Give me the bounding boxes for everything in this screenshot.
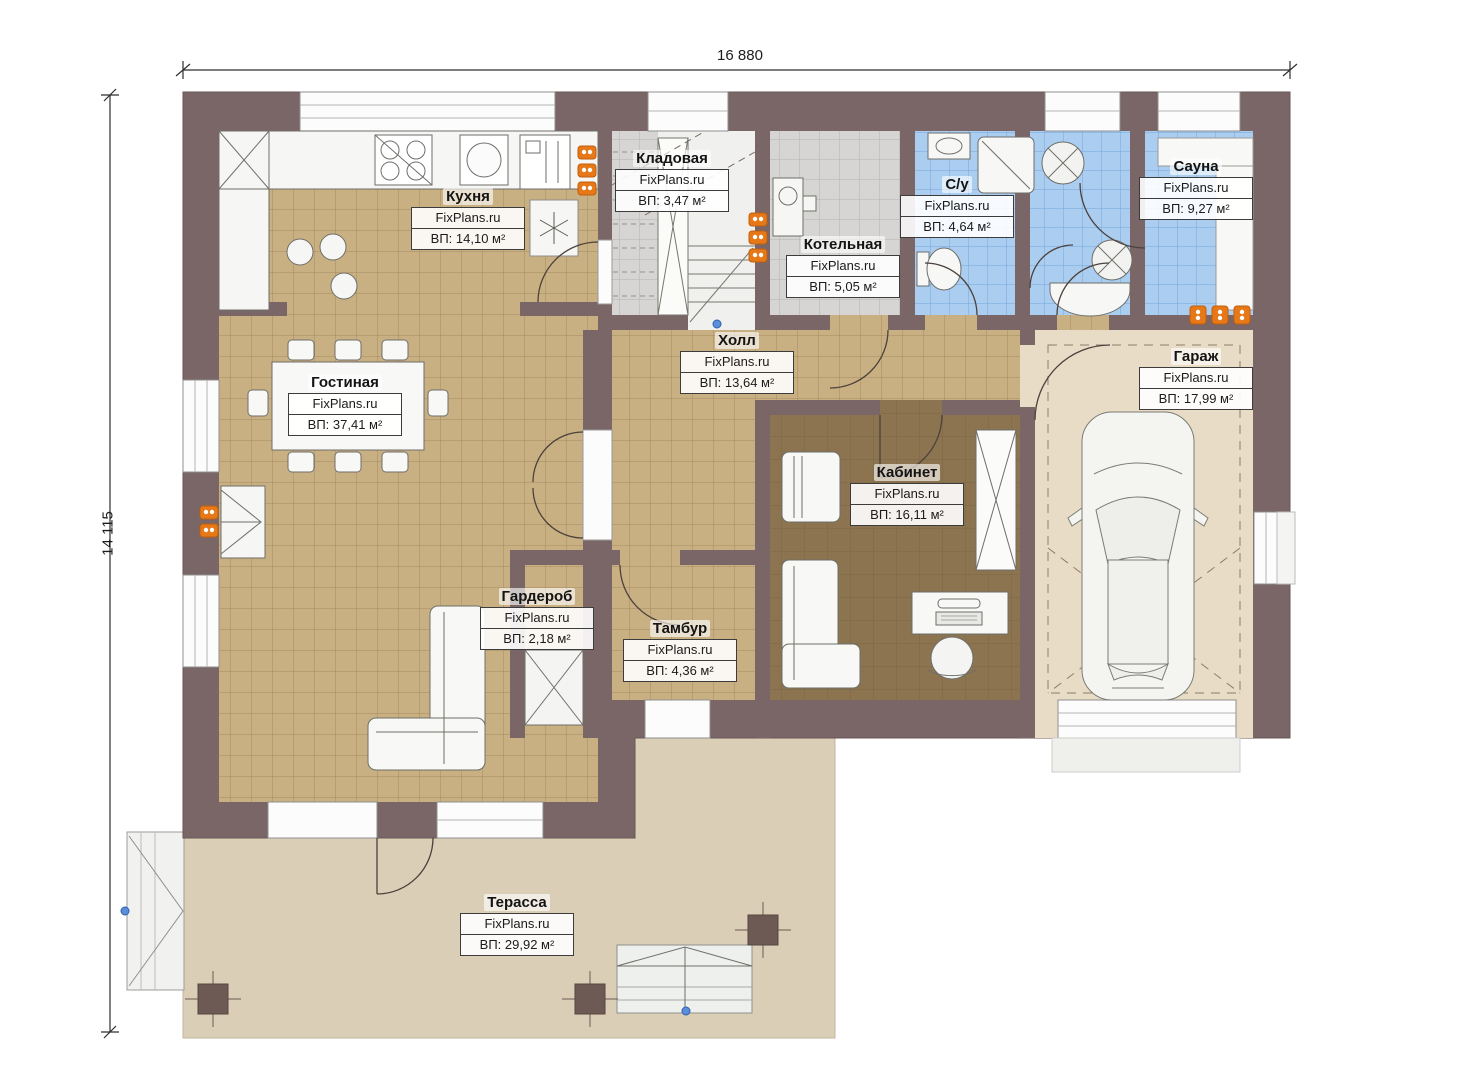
room-label-kitchen: Кухня FixPlans.ru ВП: 14,10 м² — [393, 188, 543, 250]
wardrobe-cabinet-icon — [525, 650, 583, 725]
terrace-steps-icon — [617, 945, 752, 1013]
room-info-box: FixPlans.ru ВП: 17,99 м² — [1139, 367, 1253, 410]
room-name: Котельная — [768, 236, 918, 253]
room-name: Тамбур — [605, 620, 755, 637]
office-closet-icon — [976, 430, 1016, 570]
room-info-box: FixPlans.ru ВП: 16,11 м² — [850, 483, 964, 526]
room-name: Сауна — [1121, 158, 1271, 175]
room-area-text: ВП: 16,11 м² — [851, 505, 963, 525]
room-label-terrace: Терасса FixPlans.ru ВП: 29,92 м² — [442, 894, 592, 956]
room-label-office: Кабинет FixPlans.ru ВП: 16,11 м² — [832, 464, 982, 526]
watermark-text: FixPlans.ru — [1140, 368, 1252, 389]
room-area-text: ВП: 5,05 м² — [787, 277, 899, 297]
washbasin-icon — [928, 133, 970, 159]
room-name: Гараж — [1121, 348, 1271, 365]
room-info-box: FixPlans.ru ВП: 37,41 м² — [288, 393, 402, 436]
room-area-text: ВП: 4,64 м² — [901, 217, 1013, 237]
room-info-box: FixPlans.ru ВП: 4,64 м² — [900, 195, 1014, 238]
room-label-wardrobe: Гардероб FixPlans.ru ВП: 2,18 м² — [462, 588, 612, 650]
watermark-text: FixPlans.ru — [787, 256, 899, 277]
watermark-text: FixPlans.ru — [481, 608, 593, 629]
dimension-width-label: 16 880 — [695, 47, 785, 64]
room-label-hall: Холл FixPlans.ru ВП: 13,64 м² — [662, 332, 812, 394]
room-name: Кладовая — [597, 150, 747, 167]
watermark-text: FixPlans.ru — [412, 208, 524, 229]
room-info-box: FixPlans.ru ВП: 5,05 м² — [786, 255, 900, 298]
room-info-box: FixPlans.ru ВП: 14,10 м² — [411, 207, 525, 250]
toilet-icon — [917, 248, 961, 290]
dimension-height-label: 14 115 — [100, 489, 117, 579]
room-name: Холл — [662, 332, 812, 349]
sink-icon — [460, 135, 508, 185]
room-label-sauna: Сауна FixPlans.ru ВП: 9,27 м² — [1121, 158, 1271, 220]
room-name: Терасса — [442, 894, 592, 911]
fireplace-icon — [221, 486, 265, 558]
room-area-text: ВП: 17,99 м² — [1140, 389, 1252, 409]
radiator-icon — [749, 213, 767, 262]
room-label-bathroom: С/у FixPlans.ru ВП: 4,64 м² — [882, 176, 1032, 238]
room-area-text: ВП: 13,64 м² — [681, 373, 793, 393]
room-name: Гостиная — [270, 374, 420, 391]
room-label-living: Гостиная FixPlans.ru ВП: 37,41 м² — [270, 374, 420, 436]
stove-icon — [375, 135, 432, 185]
garage-apron — [1052, 738, 1240, 772]
room-info-box: FixPlans.ru ВП: 4,36 м² — [623, 639, 737, 682]
watermark-text: FixPlans.ru — [681, 352, 793, 373]
watermark-text: FixPlans.ru — [851, 484, 963, 505]
watermark-text: FixPlans.ru — [1140, 178, 1252, 199]
watermark-text: FixPlans.ru — [616, 170, 728, 191]
room-info-box: FixPlans.ru ВП: 29,92 м² — [460, 913, 574, 956]
room-name: Гардероб — [462, 588, 612, 605]
room-area-text: ВП: 3,47 м² — [616, 191, 728, 211]
room-area-text: ВП: 14,10 м² — [412, 229, 524, 249]
room-label-pantry: Кладовая FixPlans.ru ВП: 3,47 м² — [597, 150, 747, 212]
watermark-text: FixPlans.ru — [461, 914, 573, 935]
room-label-vestibule: Тамбур FixPlans.ru ВП: 4,36 м² — [605, 620, 755, 682]
radiator-icon — [1190, 306, 1250, 324]
room-name: Кухня — [393, 188, 543, 205]
room-info-box: FixPlans.ru ВП: 2,18 м² — [480, 607, 594, 650]
room-area-text: ВП: 37,41 м² — [289, 415, 401, 435]
watermark-text: FixPlans.ru — [901, 196, 1013, 217]
room-area-text: ВП: 2,18 м² — [481, 629, 593, 649]
room-area-text: ВП: 4,36 м² — [624, 661, 736, 681]
fridge-icon — [520, 135, 570, 189]
room-label-garage: Гараж FixPlans.ru ВП: 17,99 м² — [1121, 348, 1271, 410]
watermark-text: FixPlans.ru — [624, 640, 736, 661]
radiator-icon — [578, 146, 596, 195]
room-area-text: ВП: 9,27 м² — [1140, 199, 1252, 219]
room-label-boiler: Котельная FixPlans.ru ВП: 5,05 м² — [768, 236, 918, 298]
desk-icon — [912, 592, 1008, 634]
floor-plan-page: 16 880 14 115 Кухня FixPlans.ru ВП: 14,1… — [0, 0, 1474, 1080]
room-info-box: FixPlans.ru ВП: 13,64 м² — [680, 351, 794, 394]
window-sill — [1277, 512, 1295, 584]
terrace-ramp-icon — [127, 832, 184, 990]
room-name: С/у — [882, 176, 1032, 193]
room-info-box: FixPlans.ru ВП: 9,27 м² — [1139, 177, 1253, 220]
room-name: Кабинет — [832, 464, 982, 481]
room-info-box: FixPlans.ru ВП: 3,47 м² — [615, 169, 729, 212]
car-icon — [1068, 412, 1208, 700]
watermark-text: FixPlans.ru — [289, 394, 401, 415]
room-area-text: ВП: 29,92 м² — [461, 935, 573, 955]
